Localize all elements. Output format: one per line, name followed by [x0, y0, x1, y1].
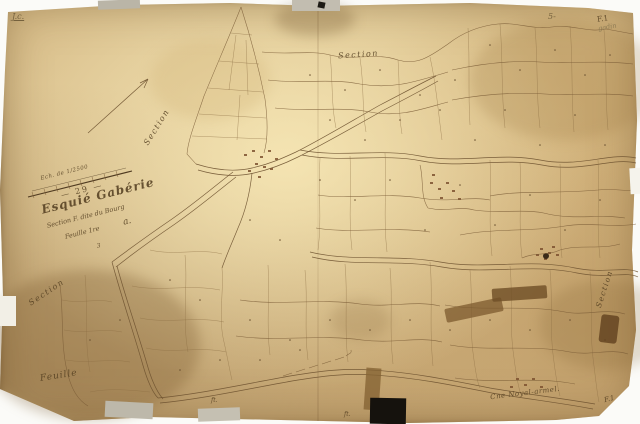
paper-sheet	[0, 0, 640, 424]
scanned-map-page: Section Section Section Section Feuille …	[0, 0, 640, 424]
